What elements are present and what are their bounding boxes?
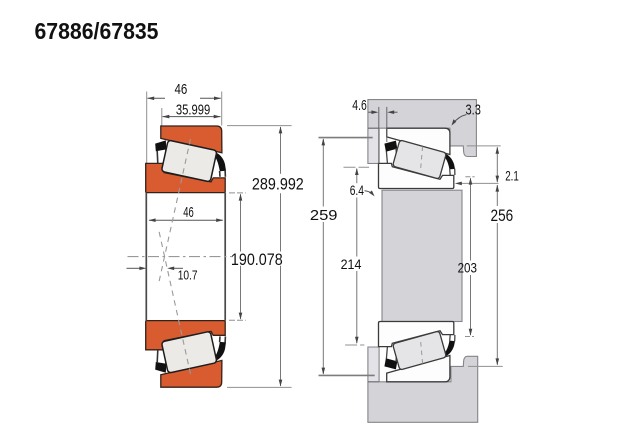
svg-text:46: 46 — [183, 204, 194, 221]
svg-text:190.078: 190.078 — [231, 250, 283, 269]
svg-text:3.3: 3.3 — [466, 101, 481, 118]
svg-text:67886/67835: 67886/67835 — [35, 18, 159, 44]
svg-text:259: 259 — [310, 207, 338, 224]
svg-text:46: 46 — [175, 81, 188, 98]
svg-text:289.992: 289.992 — [252, 175, 304, 194]
svg-text:214: 214 — [341, 256, 362, 272]
svg-text:10.7: 10.7 — [178, 268, 198, 283]
svg-text:6.4: 6.4 — [350, 182, 364, 198]
svg-text:203: 203 — [458, 260, 478, 276]
svg-text:35.999: 35.999 — [176, 102, 210, 119]
svg-text:2.1: 2.1 — [505, 167, 519, 183]
svg-text:4.6: 4.6 — [352, 97, 367, 114]
svg-text:256: 256 — [491, 206, 514, 225]
